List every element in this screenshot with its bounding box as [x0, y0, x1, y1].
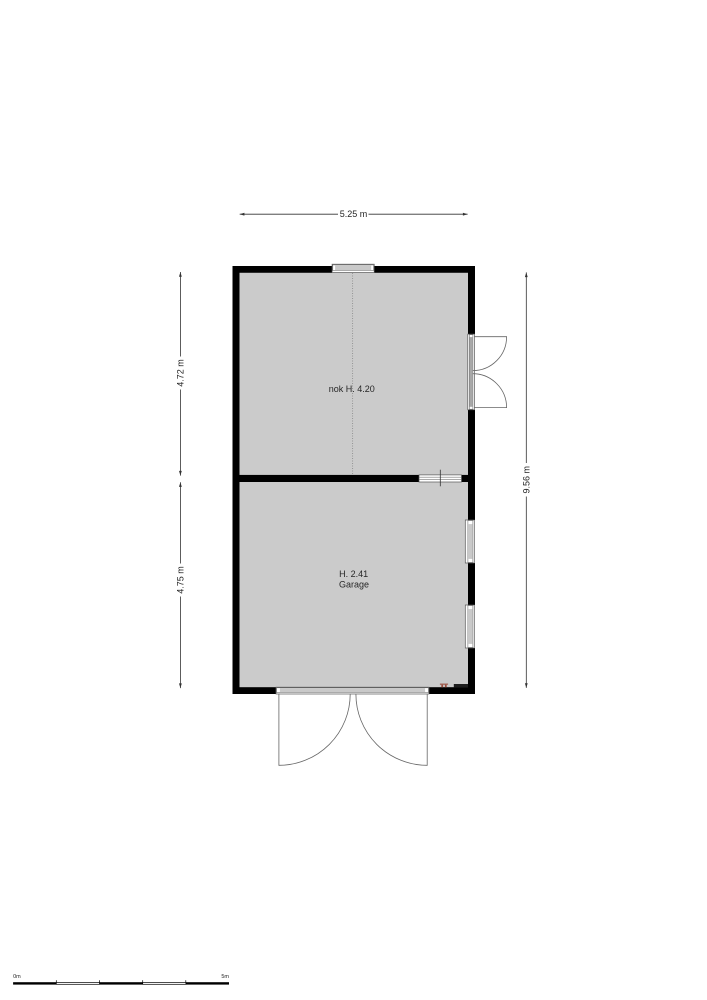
svg-text:4.75 m: 4.75 m [176, 566, 186, 594]
svg-text:nok H. 4.20: nok H. 4.20 [329, 384, 375, 394]
svg-text:4.72 m: 4.72 m [176, 359, 186, 387]
svg-text:Garage: Garage [339, 580, 369, 590]
svg-text:5.25 m: 5.25 m [340, 209, 368, 219]
svg-text:0m: 0m [13, 974, 21, 980]
svg-text:H. 2.41: H. 2.41 [339, 569, 368, 579]
svg-text:5m: 5m [221, 974, 229, 980]
svg-text:9.56 m: 9.56 m [521, 466, 531, 494]
